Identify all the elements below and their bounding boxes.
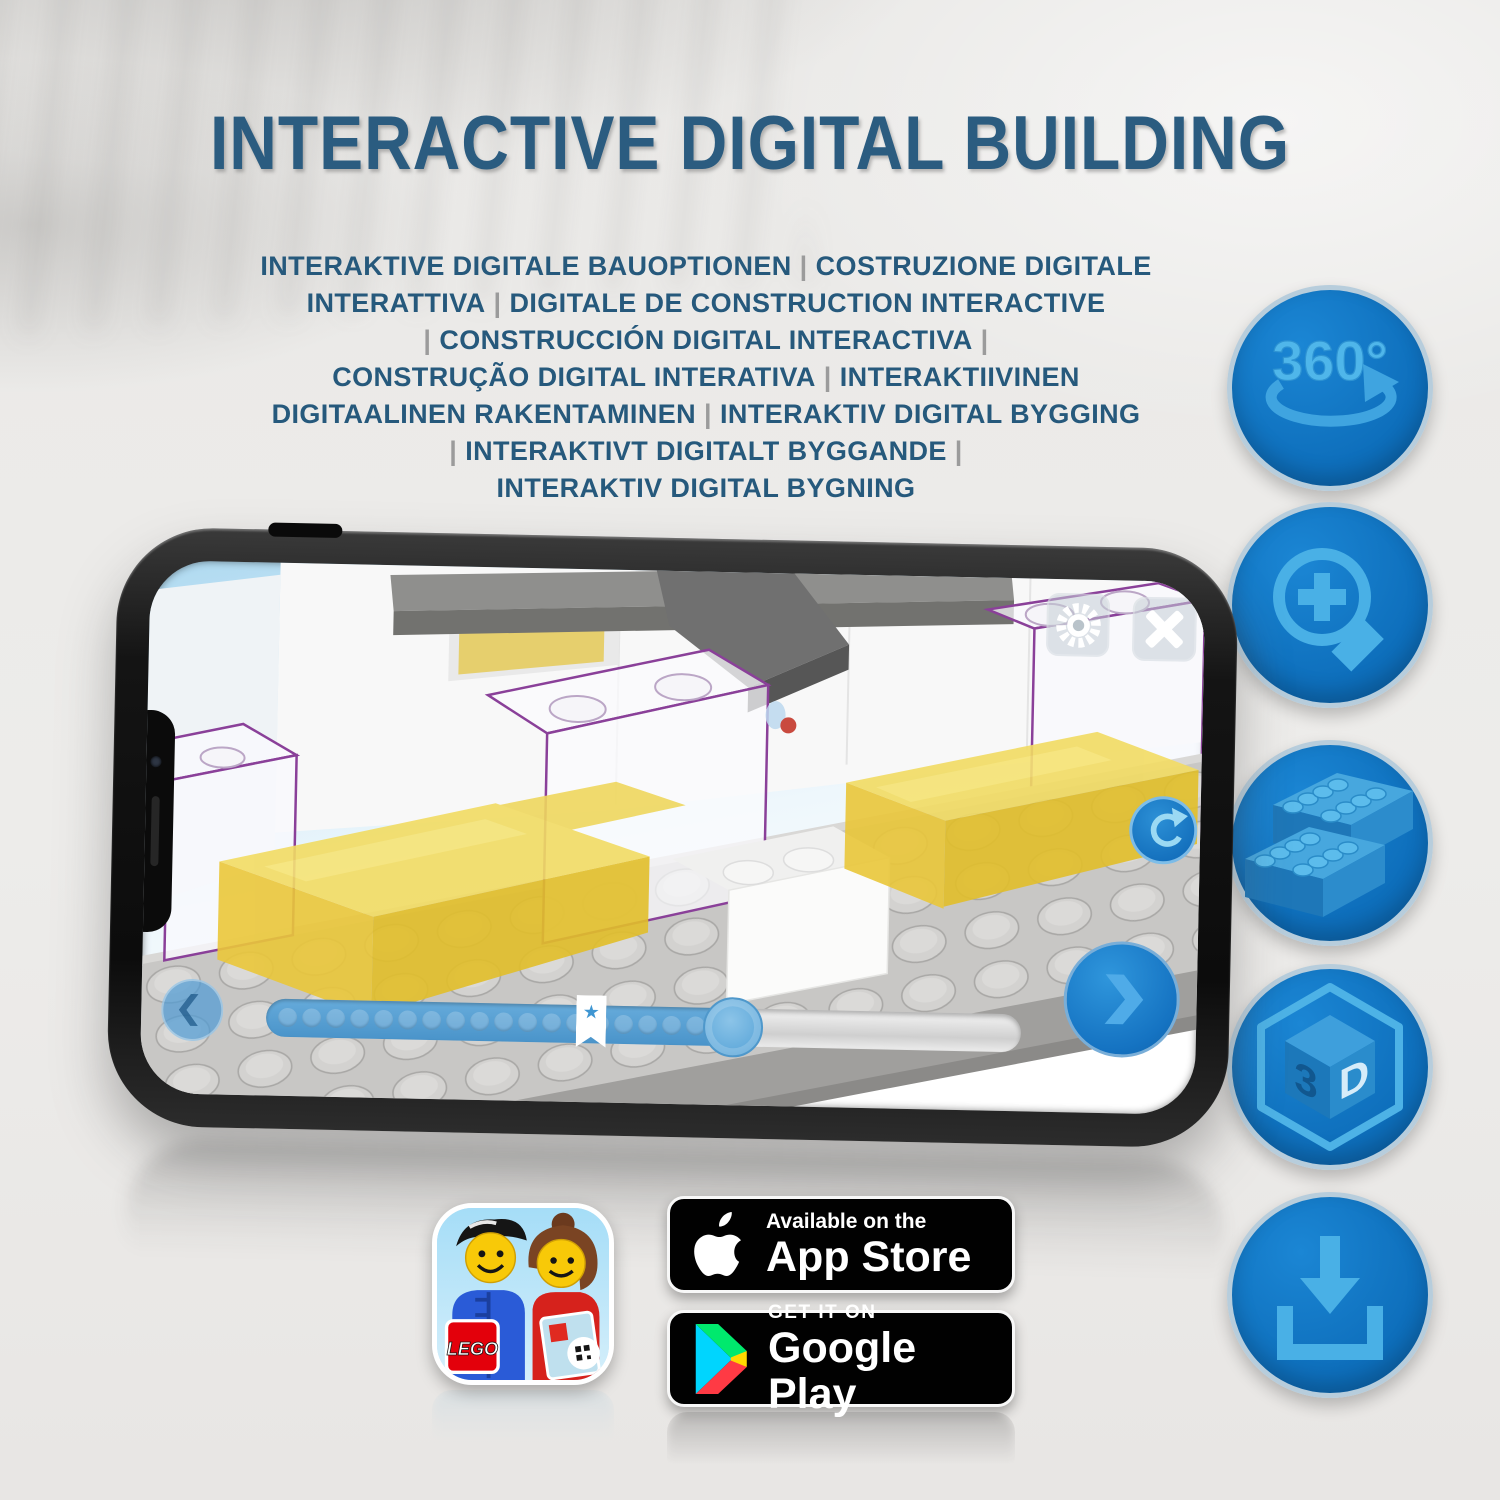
progress-dot [398, 1010, 417, 1029]
progress-dot [446, 1011, 465, 1030]
google-play-tagline: GET IT ON [768, 1301, 1012, 1325]
app-store-badge[interactable]: Available on the App Store [667, 1196, 1015, 1293]
feature-download [1227, 1192, 1433, 1398]
subtitle-line: CONSTRUÇÃO DIGITAL INTERATIVA|INTERAKTII… [0, 359, 1412, 396]
google-play-triangle-icon [694, 1324, 750, 1394]
promo-page: INTERACTIVE DIGITAL BUILDING INTERAKTIVE… [0, 0, 1500, 1500]
chevron-left-icon [166, 983, 219, 1036]
progress-dot [494, 1012, 513, 1031]
gear-icon [1049, 596, 1106, 653]
progress-dot [326, 1009, 345, 1028]
close-button[interactable] [1132, 597, 1197, 662]
close-icon [1136, 601, 1193, 658]
rotate-view-button[interactable] [1129, 796, 1198, 865]
settings-button[interactable] [1046, 593, 1110, 657]
lego-app-icon[interactable]: LEGO [432, 1203, 614, 1385]
feature-360-rotation: 360° [1227, 285, 1433, 491]
phone-screen: ★ [140, 560, 1206, 1115]
progress-dot [278, 1008, 297, 1027]
feature-3d-view: 3 D [1227, 964, 1433, 1170]
next-step-button[interactable] [1063, 940, 1181, 1058]
3d-cube-icon: 3 D [1244, 981, 1416, 1153]
progress-dot [518, 1013, 537, 1032]
google-play-badge-reflection [667, 1412, 1015, 1478]
feature-zoom [1227, 502, 1433, 708]
subtitle-line: INTERAKTIVE DIGITALE BAUOPTIONEN|COSTRUZ… [0, 248, 1412, 285]
phone-side-button [268, 522, 342, 538]
page-title: INTERACTIVE DIGITAL BUILDING [23, 99, 1478, 186]
subtitle-line: |CONSTRUCCIÓN DIGITAL INTERACTIVA| [0, 322, 1412, 359]
subtitle-line: DIGITAALINEN RAKENTAMINEN|INTERAKTIV DIG… [0, 396, 1412, 433]
chevron-right-icon [1073, 950, 1171, 1048]
progress-dot [350, 1009, 369, 1028]
progress-dot [638, 1015, 657, 1034]
phone-mockup: ★ [106, 526, 1239, 1148]
brick-stack-icon [1245, 765, 1415, 921]
subtitle-line: INTERAKTIV DIGITAL BYGNING [0, 470, 1412, 507]
phone-notch [140, 710, 176, 933]
progress-dot [614, 1015, 633, 1034]
progress-dot [662, 1016, 681, 1035]
app-store-tagline: Available on the [766, 1210, 971, 1234]
app-store-name: App Store [766, 1234, 971, 1280]
progress-dot [542, 1013, 561, 1032]
lego-app-artwork: LEGO [437, 1208, 609, 1380]
apple-icon [694, 1212, 748, 1278]
previous-step-button[interactable] [161, 978, 224, 1041]
rotation-360-icon: 360° [1251, 322, 1409, 454]
subtitle-line: INTERATTIVA|DIGITALE DE CONSTRUCTION INT… [0, 285, 1412, 322]
subtitle-line: |INTERAKTIVT DIGITALT BYGGANDE| [0, 433, 1412, 470]
feature-bricks [1227, 740, 1433, 946]
rotate-arrow-icon [1137, 804, 1190, 857]
earpiece-speaker [150, 796, 159, 866]
google-play-name: Google Play [768, 1325, 1012, 1417]
progress-dot [302, 1008, 321, 1027]
progress-dot [422, 1011, 441, 1030]
front-camera [150, 756, 161, 767]
lego-app-icon-reflection [432, 1390, 614, 1460]
download-icon [1255, 1220, 1405, 1370]
progress-dot [374, 1010, 393, 1029]
google-play-badge[interactable]: GET IT ON Google Play [667, 1310, 1015, 1407]
lego-logo-text: LEGO [447, 1339, 498, 1359]
progress-dot [470, 1012, 489, 1031]
zoom-in-icon [1260, 535, 1400, 675]
